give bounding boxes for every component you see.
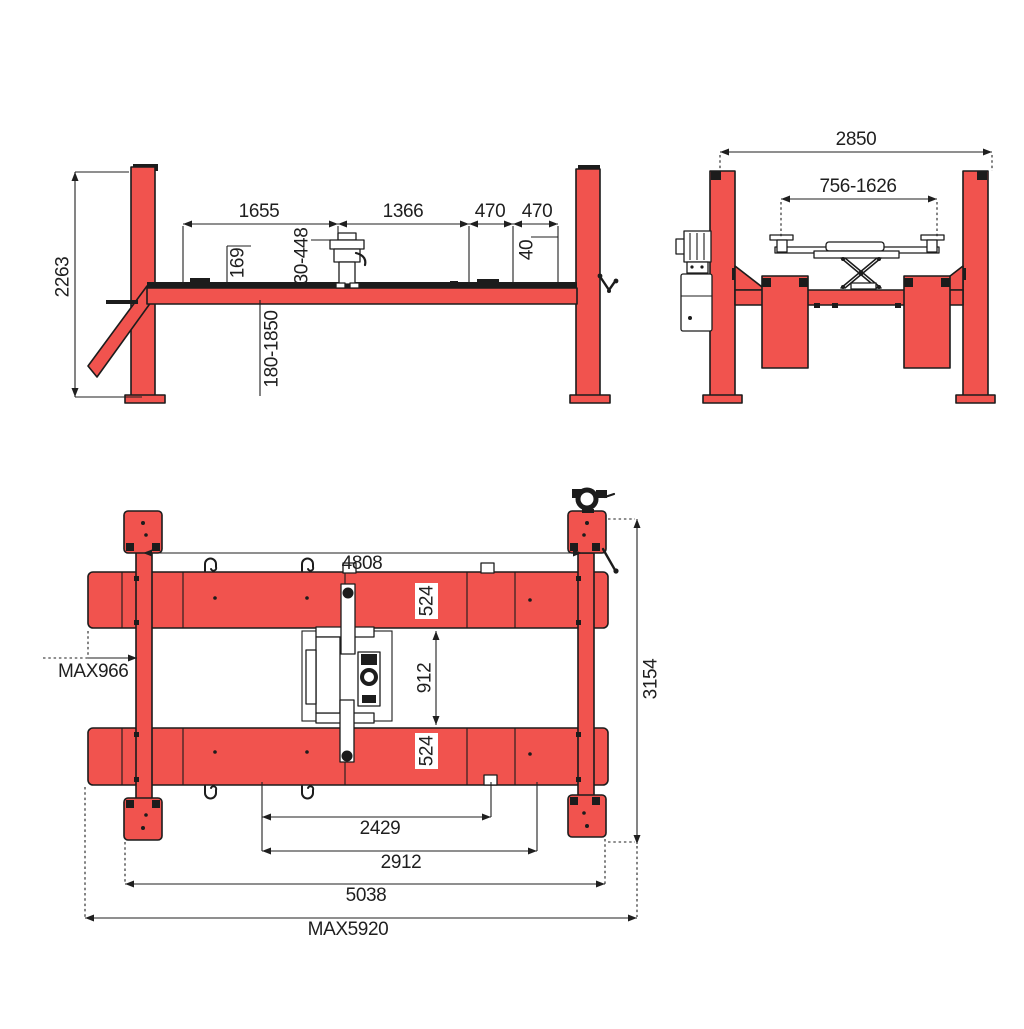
dim-label-2850: 2850 bbox=[836, 129, 877, 150]
jacking-beam-side bbox=[330, 233, 365, 288]
valve-block bbox=[687, 262, 708, 273]
jack-motor bbox=[362, 670, 376, 684]
side-view: 2263 1655 1366 470 470 40 16 bbox=[53, 164, 619, 403]
dim-label-max5920: MAX5920 bbox=[308, 919, 389, 940]
base-pad-top-right bbox=[568, 511, 606, 553]
rail-detail bbox=[450, 281, 458, 285]
dim-label-169: 169 bbox=[228, 248, 249, 279]
dim-post-span-length: 4808 bbox=[143, 553, 582, 574]
front-left-column bbox=[710, 171, 735, 398]
front-view: 2850 756-1626 bbox=[676, 129, 995, 403]
lever-joint bbox=[607, 289, 611, 293]
front-left-baseplate bbox=[703, 395, 742, 403]
dim-label-5038: 5038 bbox=[346, 885, 387, 906]
front-right-column bbox=[963, 171, 988, 398]
base-pad-bottom-left bbox=[124, 798, 162, 840]
oil-tank bbox=[681, 274, 712, 331]
dim-label-1655: 1655 bbox=[239, 201, 280, 222]
dim-label-180-1850: 180-1850 bbox=[262, 310, 283, 387]
front-left-runway bbox=[762, 276, 808, 368]
side-right-column bbox=[576, 169, 600, 398]
anchor-tab bbox=[481, 563, 494, 573]
jack-carriage bbox=[316, 637, 340, 713]
dim-label-40: 40 bbox=[517, 240, 538, 260]
dim-label-2912: 2912 bbox=[381, 852, 422, 873]
floor-anchor bbox=[106, 300, 138, 304]
plan-view: 4808 524 912 524 MAX966 3154 bbox=[43, 489, 662, 940]
dim-jack-arm-span: 756-1626 bbox=[781, 176, 937, 237]
dim-label-524-front: 524 bbox=[417, 585, 438, 616]
side-right-baseplate bbox=[570, 395, 610, 403]
front-right-runway bbox=[904, 276, 950, 368]
lift-technical-drawing: 2263 1655 1366 470 470 40 16 bbox=[0, 0, 1024, 1024]
runway-platform bbox=[147, 288, 577, 304]
front-left-pulley bbox=[711, 171, 721, 180]
dim-label-470b: 470 bbox=[522, 201, 553, 222]
dim-span-2429: 2429 bbox=[262, 782, 491, 851]
dim-outer-width: 3154 bbox=[608, 519, 662, 917]
plan-motor bbox=[572, 489, 614, 513]
cable-hook bbox=[302, 786, 313, 799]
dim-jack-pad-range: 30-448 bbox=[292, 228, 338, 285]
base-pad-bottom-right bbox=[568, 795, 606, 837]
dim-label-912: 912 bbox=[415, 663, 436, 694]
power-unit bbox=[676, 231, 712, 331]
jack-arm-right bbox=[921, 235, 944, 240]
dim-span-5038: 5038 bbox=[125, 839, 605, 906]
dim-label-756-1626: 756-1626 bbox=[819, 176, 896, 197]
base-pad-top-left bbox=[124, 511, 162, 553]
dim-label-2429: 2429 bbox=[360, 818, 401, 839]
lever-knob bbox=[614, 279, 619, 284]
dim-label-3154: 3154 bbox=[641, 658, 662, 700]
dim-label-1366: 1366 bbox=[383, 201, 424, 222]
dim-label-524-rear: 524 bbox=[417, 735, 438, 766]
plan-right-post bbox=[578, 553, 594, 798]
drawing-canvas: 2263 1655 1366 470 470 40 16 bbox=[0, 0, 1024, 1024]
side-left-baseplate bbox=[125, 395, 165, 403]
dim-label-max966: MAX966 bbox=[58, 661, 128, 682]
front-right-pulley bbox=[977, 171, 987, 180]
dim-label-30-448: 30-448 bbox=[292, 228, 313, 285]
dim-side-extension: MAX966 bbox=[43, 631, 137, 682]
front-right-baseplate bbox=[956, 395, 995, 403]
dim-runway-widths: 524 912 524 bbox=[415, 583, 439, 769]
lever-pivot bbox=[598, 274, 603, 279]
scissor-pivot bbox=[858, 270, 863, 275]
cable-hook bbox=[205, 559, 216, 572]
cable-hook bbox=[205, 786, 216, 799]
plan-lock-lever bbox=[603, 549, 615, 570]
dim-label-2263: 2263 bbox=[53, 257, 74, 298]
wheel-chock bbox=[190, 278, 210, 283]
dim-lift-range: 180-1850 bbox=[260, 300, 283, 396]
wheel-stop-plate bbox=[477, 279, 499, 285]
dim-wheel-stop: 40 bbox=[517, 237, 559, 260]
plan-left-post bbox=[136, 551, 152, 801]
dim-rail-height: 169 bbox=[227, 246, 251, 285]
dim-label-4808: 4808 bbox=[342, 553, 383, 574]
cable-hook bbox=[302, 559, 313, 572]
dim-overall-width: 2850 bbox=[720, 129, 992, 171]
jack-platform bbox=[826, 242, 884, 251]
dim-overall-length: MAX5920 bbox=[85, 787, 637, 940]
dim-label-470a: 470 bbox=[475, 201, 506, 222]
